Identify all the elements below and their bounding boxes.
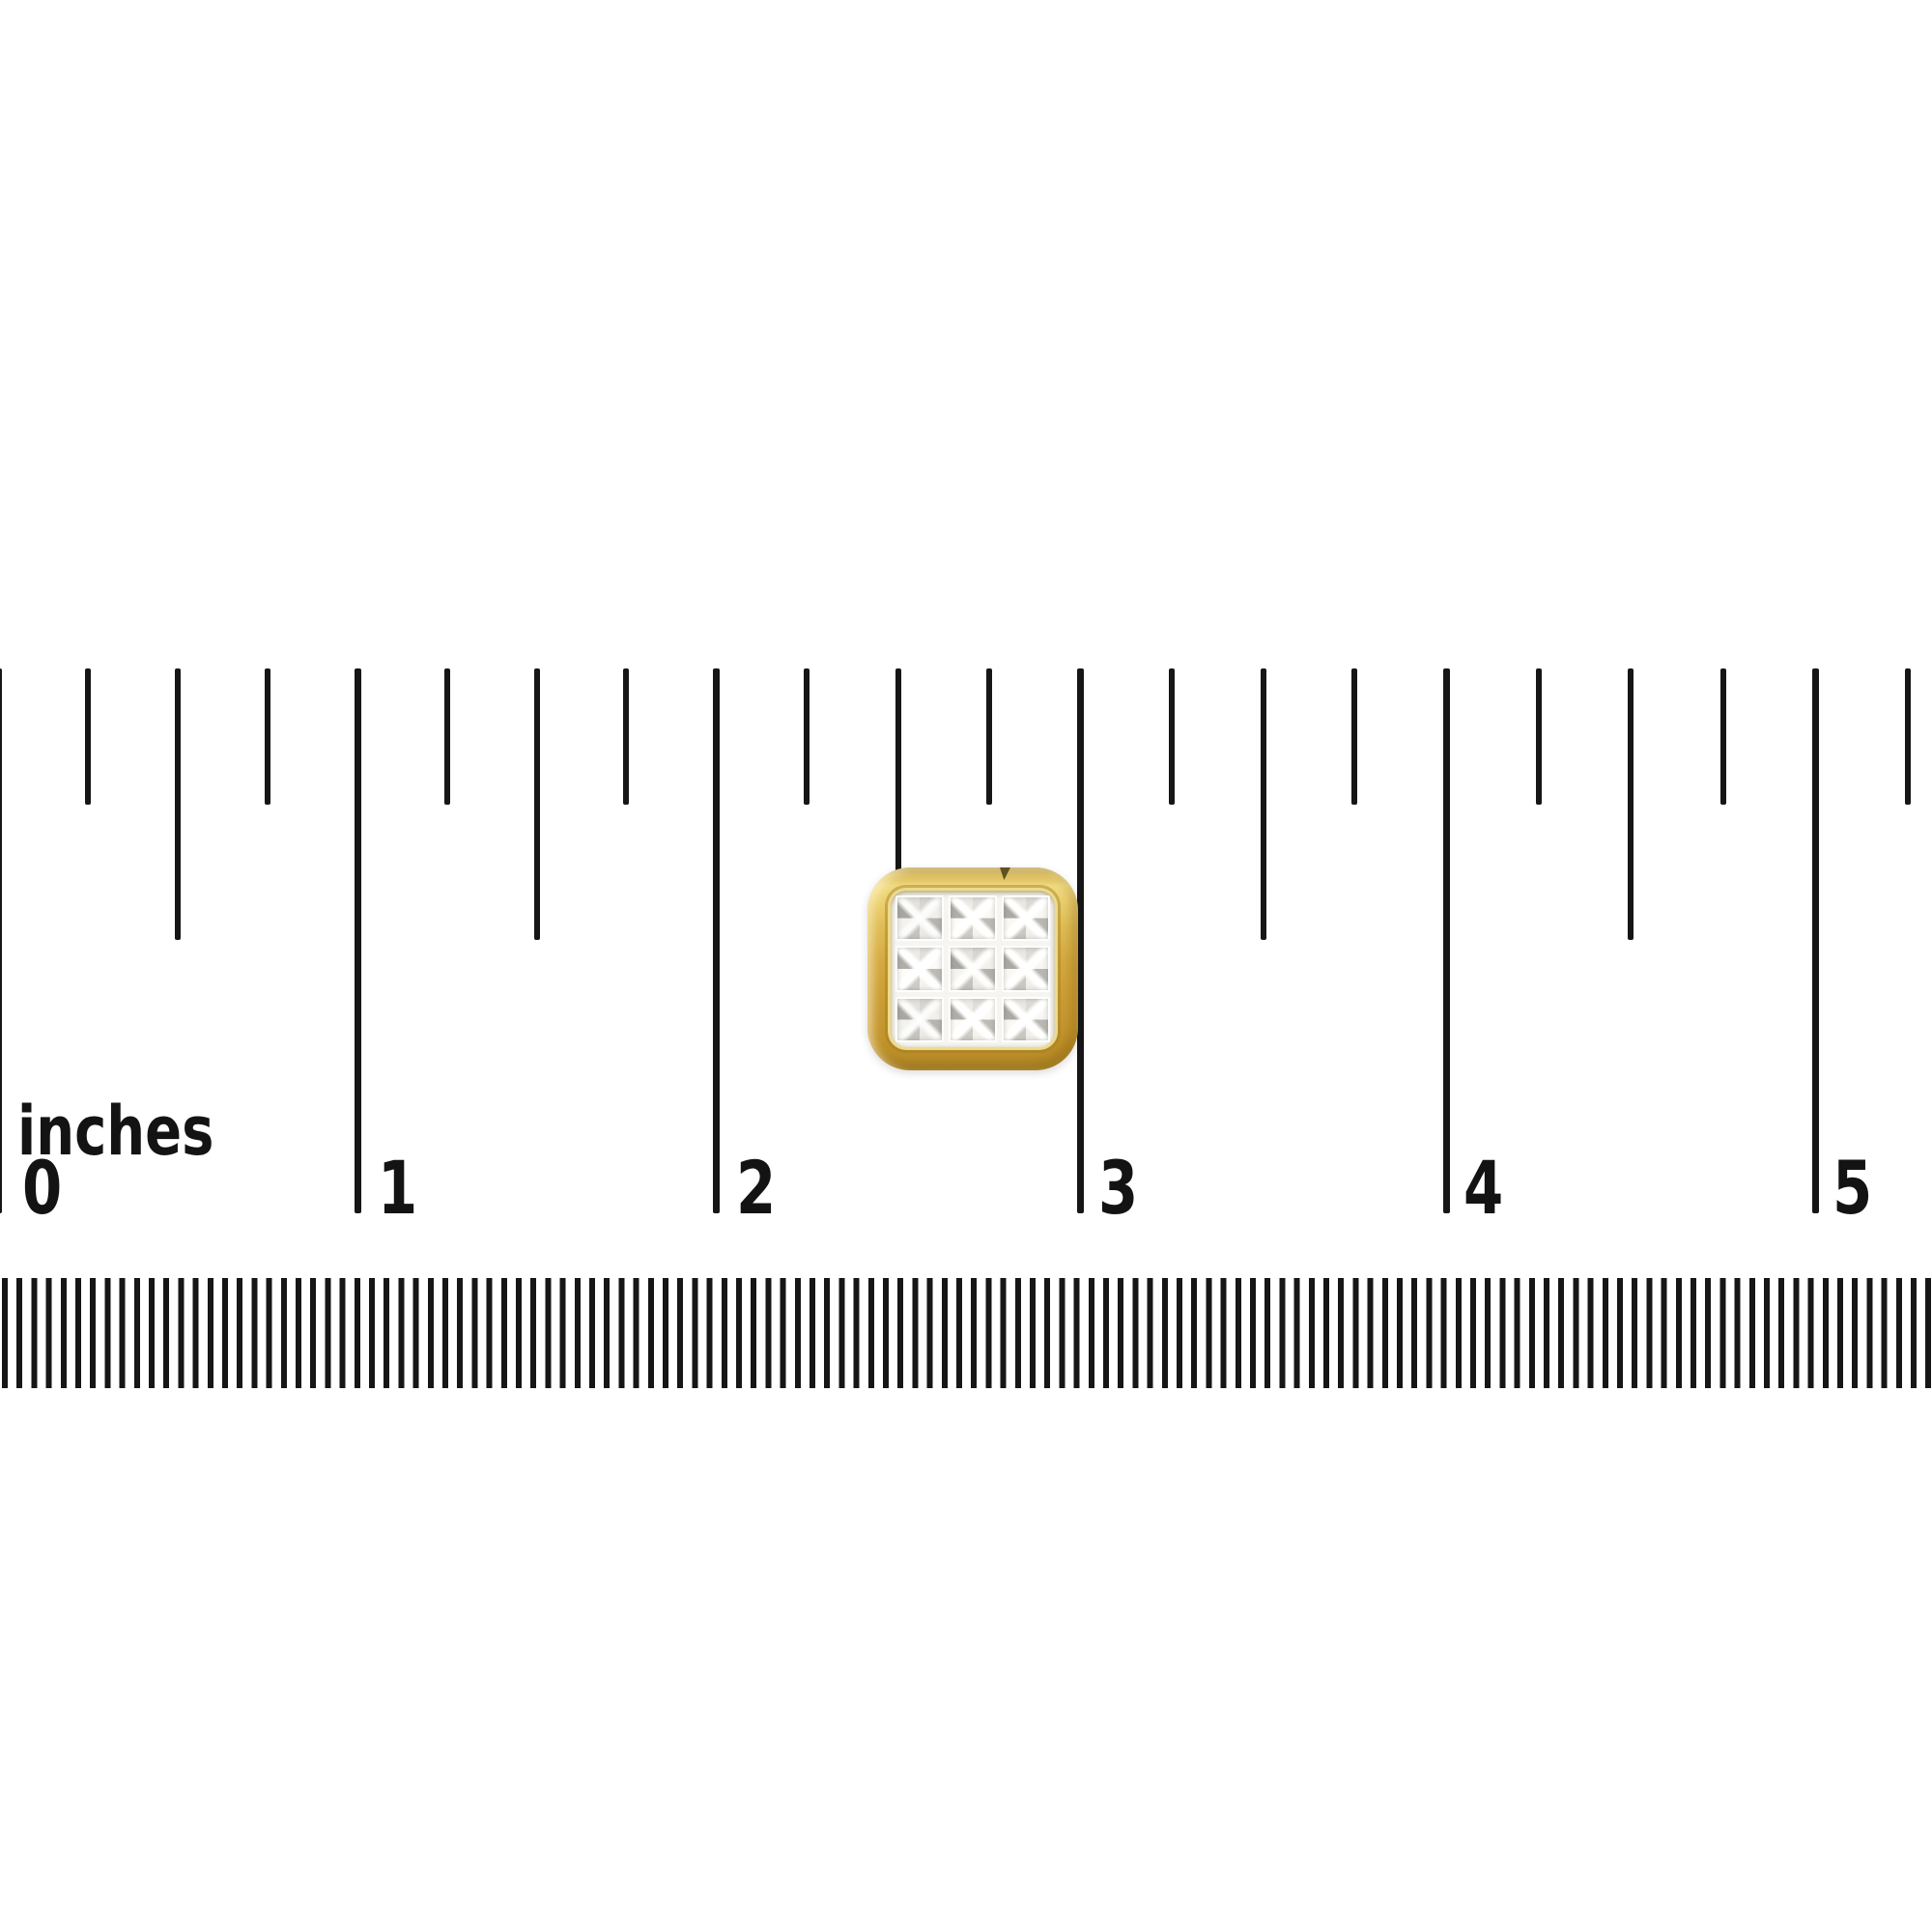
- quarter-inch-tick: [986, 668, 992, 805]
- millimeter-ruler: [0, 1278, 1932, 1388]
- princess-cut-diamond: [1002, 946, 1050, 991]
- half-inch-tick: [175, 668, 181, 940]
- inch-label-4: 4: [1463, 1151, 1503, 1225]
- quarter-inch-tick: [1351, 668, 1357, 805]
- quarter-inch-tick: [85, 668, 91, 805]
- quarter-inch-tick: [1720, 668, 1726, 805]
- princess-cut-diamond: [949, 895, 997, 941]
- quarter-inch-tick: [265, 668, 270, 805]
- inch-label-0: 0: [22, 1151, 62, 1225]
- inch-label-1: 1: [378, 1151, 417, 1225]
- inch-tick: [1812, 668, 1819, 1213]
- gold-diamond-stud-earring: [867, 867, 1078, 1070]
- product-scale-photo: inches 012345: [0, 0, 1932, 1932]
- inch-tick: [355, 668, 361, 1213]
- princess-cut-diamond: [895, 997, 944, 1042]
- inch-tick: [1443, 668, 1450, 1213]
- quarter-inch-tick: [1536, 668, 1542, 805]
- princess-cut-diamond: [1002, 997, 1050, 1042]
- princess-cut-diamond: [949, 997, 997, 1042]
- half-inch-tick: [534, 668, 540, 940]
- princess-cut-diamond: [895, 895, 944, 941]
- inch-tick: [713, 668, 720, 1213]
- princess-cut-diamond: [895, 946, 944, 991]
- princess-cut-diamond: [1002, 895, 1050, 941]
- princess-cut-diamond: [949, 946, 997, 991]
- inch-label-2: 2: [736, 1151, 776, 1225]
- earring-notch: [1000, 867, 1010, 880]
- inch-label-5: 5: [1833, 1151, 1872, 1225]
- half-inch-tick: [1628, 668, 1634, 940]
- half-inch-tick: [1261, 668, 1266, 940]
- inch-tick: [0, 668, 2, 1213]
- diamond-cluster: [891, 891, 1055, 1047]
- quarter-inch-tick: [1905, 668, 1911, 805]
- quarter-inch-tick: [444, 668, 450, 805]
- quarter-inch-tick: [804, 668, 810, 805]
- inch-label-3: 3: [1098, 1151, 1138, 1225]
- quarter-inch-tick: [623, 668, 629, 805]
- quarter-inch-tick: [1169, 668, 1175, 805]
